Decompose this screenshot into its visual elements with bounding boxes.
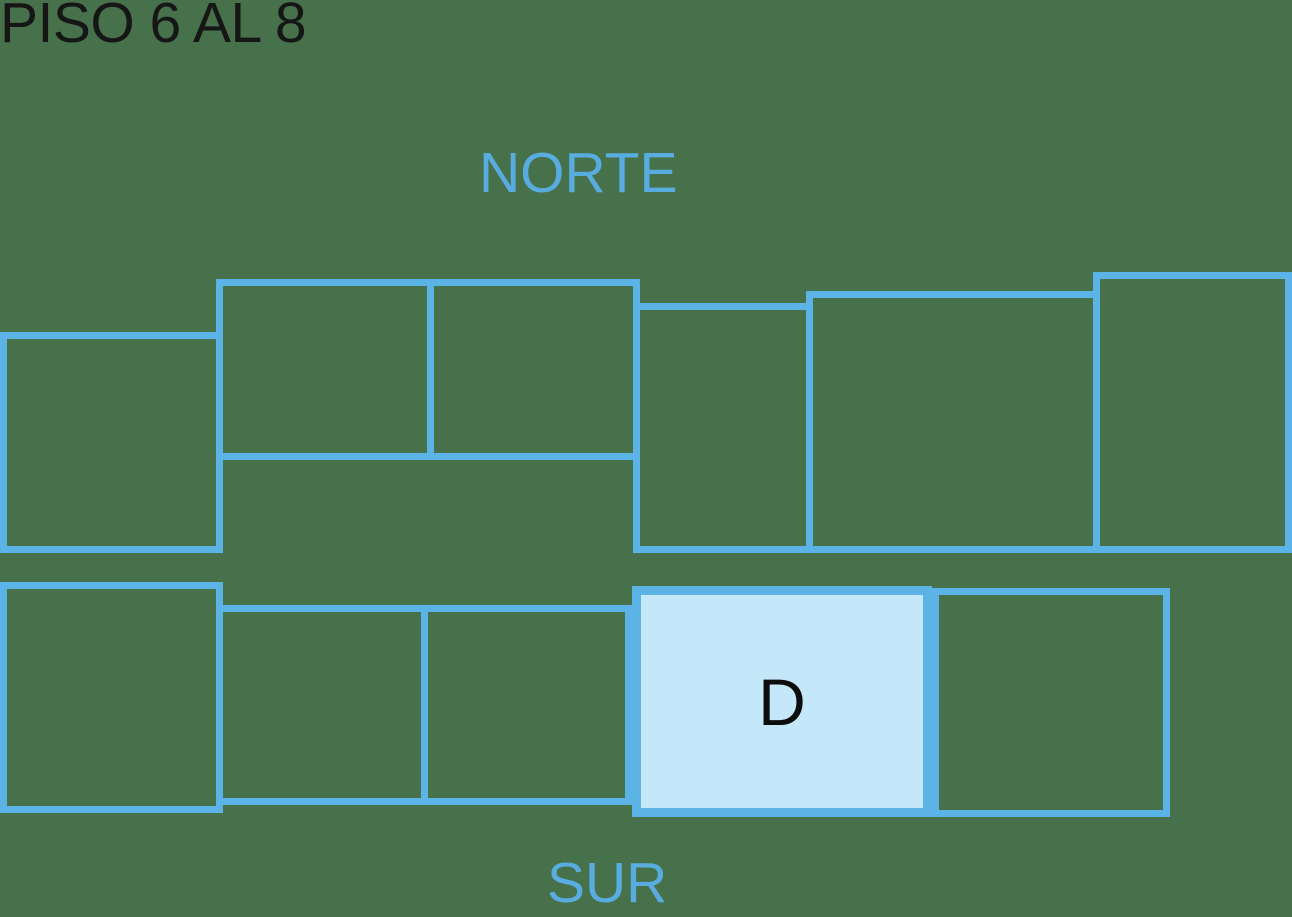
floorplan-unit[interactable] <box>216 279 434 460</box>
floorplan-unit[interactable] <box>427 279 640 460</box>
floorplan-unit[interactable] <box>806 291 1100 553</box>
floorplan-rooms: D <box>0 0 1292 913</box>
unit-label: D <box>758 669 806 735</box>
floorplan-canvas: PISO 6 AL 8 NORTE D SUR <box>0 0 1292 913</box>
floorplan-unit[interactable] <box>421 605 632 805</box>
floorplan-unit-selected[interactable]: D <box>632 586 932 817</box>
floorplan-unit[interactable] <box>0 332 223 553</box>
floorplan-unit[interactable] <box>216 605 428 805</box>
floorplan-unit[interactable] <box>1093 272 1292 553</box>
label-sur: SUR <box>547 851 667 917</box>
floorplan-unit[interactable] <box>0 582 223 813</box>
floorplan-unit[interactable] <box>932 588 1170 817</box>
floorplan-unit[interactable] <box>633 303 813 553</box>
